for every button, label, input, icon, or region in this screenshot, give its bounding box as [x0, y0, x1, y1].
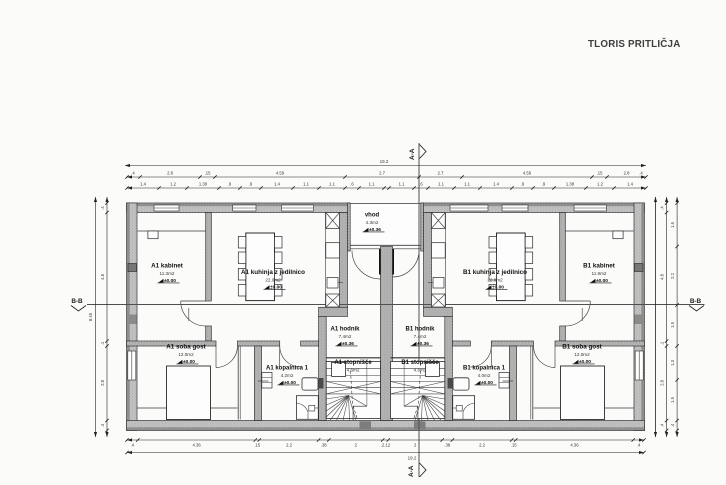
svg-text:4.59: 4.59: [276, 171, 285, 176]
svg-text:.38: .38: [444, 442, 450, 447]
svg-text:4.6m2: 4.6m2: [414, 368, 427, 373]
svg-text:2.8: 2.8: [660, 379, 665, 385]
svg-text:12.0m2: 12.0m2: [574, 352, 590, 357]
svg-text:1.1: 1.1: [329, 182, 335, 187]
svg-text:4.3m2: 4.3m2: [366, 220, 379, 225]
svg-text:.4: .4: [639, 171, 643, 176]
svg-text:1.5: 1.5: [670, 321, 675, 327]
svg-text:12.0m2: 12.0m2: [178, 352, 194, 357]
svg-text:19.2: 19.2: [380, 159, 389, 164]
svg-text:B1 kabinet: B1 kabinet: [583, 263, 616, 270]
svg-text:.4: .4: [100, 206, 105, 210]
svg-text:TLORIS PRITLIČJA: TLORIS PRITLIČJA: [588, 38, 680, 50]
svg-text:.4: .4: [660, 423, 665, 427]
svg-text:A-A: A-A: [409, 148, 416, 160]
svg-text:1.1: 1.1: [303, 182, 309, 187]
svg-text:.1: .1: [660, 341, 665, 345]
svg-text:.6: .6: [419, 182, 423, 187]
svg-text:1.38: 1.38: [566, 182, 575, 187]
svg-text:2: 2: [355, 442, 358, 447]
svg-text:1.4: 1.4: [140, 182, 146, 187]
svg-text:2.7: 2.7: [379, 171, 385, 176]
svg-text:11.9m2: 11.9m2: [592, 271, 607, 276]
svg-text:A-A: A-A: [408, 465, 415, 477]
svg-text:A1 kabinet: A1 kabinet: [151, 263, 184, 270]
svg-text:4.36: 4.36: [570, 442, 579, 447]
svg-text:B-B: B-B: [71, 298, 83, 305]
svg-text:B1 kuhinja z jedilnico: B1 kuhinja z jedilnico: [463, 269, 527, 276]
svg-text:4.59: 4.59: [523, 171, 532, 176]
svg-text:19.2: 19.2: [408, 456, 417, 461]
svg-text:7.4m2: 7.4m2: [414, 334, 427, 339]
svg-text:2.8: 2.8: [100, 379, 105, 385]
svg-text:.6: .6: [350, 182, 354, 187]
svg-text:7.4m2: 7.4m2: [339, 334, 352, 339]
svg-text:4.2m2: 4.2m2: [281, 373, 294, 378]
svg-text:B1 hodnik: B1 hodnik: [405, 327, 435, 333]
svg-text:1.1: 1.1: [369, 182, 375, 187]
svg-text:.4: .4: [670, 423, 675, 427]
svg-text:2.2: 2.2: [670, 272, 675, 278]
svg-text:.9: .9: [228, 182, 232, 187]
svg-text:.9: .9: [521, 182, 525, 187]
svg-text:8.45: 8.45: [88, 312, 93, 321]
svg-text:A1 kopalnica 1: A1 kopalnica 1: [266, 366, 309, 372]
svg-text:.4: .4: [660, 206, 665, 210]
svg-text:1.38: 1.38: [199, 182, 208, 187]
svg-text:B-B: B-B: [690, 298, 702, 305]
svg-text:.2.12: .2.12: [381, 442, 391, 447]
svg-text:22.0m2: 22.0m2: [487, 278, 503, 283]
svg-text:.9: .9: [249, 182, 253, 187]
svg-text:22.0m2: 22.0m2: [265, 278, 281, 283]
svg-text:.9: .9: [542, 182, 546, 187]
svg-text:2.2: 2.2: [479, 442, 485, 447]
svg-text:1.4: 1.4: [274, 182, 280, 187]
svg-text:B1 stopnišče: B1 stopnišče: [401, 360, 439, 366]
svg-text:.15: .15: [205, 171, 211, 176]
svg-text:1.2: 1.2: [170, 182, 176, 187]
svg-text:.38: .38: [321, 442, 327, 447]
svg-text:1.2: 1.2: [597, 182, 603, 187]
svg-text:A1 soba gost: A1 soba gost: [166, 344, 206, 351]
svg-text:4.0m2: 4.0m2: [478, 373, 491, 378]
svg-text:1.6: 1.6: [670, 221, 675, 227]
svg-text:2.7: 2.7: [438, 171, 444, 176]
svg-text:4.6m2: 4.6m2: [347, 368, 360, 373]
svg-text:A1 hodnik: A1 hodnik: [330, 327, 360, 333]
svg-text:1.1: 1.1: [464, 182, 470, 187]
svg-text:.15: .15: [597, 171, 603, 176]
svg-text:2.8: 2.8: [167, 171, 173, 176]
svg-text:2.8: 2.8: [624, 171, 630, 176]
svg-text:.4: .4: [637, 442, 641, 447]
svg-text:1.3: 1.3: [670, 359, 675, 365]
svg-text:1.4: 1.4: [627, 182, 633, 187]
svg-text:4.8: 4.8: [100, 273, 105, 279]
svg-text:.15: .15: [511, 442, 517, 447]
svg-text:2.2: 2.2: [286, 442, 292, 447]
svg-text:B1 kopalnica 1: B1 kopalnica 1: [463, 366, 506, 372]
svg-text:.15: .15: [254, 442, 260, 447]
svg-text:1.1: 1.1: [438, 182, 444, 187]
svg-text:1.1: 1.1: [399, 182, 405, 187]
svg-text:vhod: vhod: [365, 213, 380, 219]
svg-text:.4: .4: [131, 442, 135, 447]
svg-text:A1 kuhinja z jedilnico: A1 kuhinja z jedilnico: [241, 269, 305, 276]
svg-text:A1 stopnišče: A1 stopnišče: [334, 360, 372, 366]
svg-text:1.5: 1.5: [670, 396, 675, 402]
svg-text:4.36: 4.36: [193, 442, 202, 447]
svg-text:1.4: 1.4: [493, 182, 499, 187]
svg-text:11.3m2: 11.3m2: [160, 271, 175, 276]
svg-text:.4: .4: [131, 171, 135, 176]
svg-text:.1: .1: [100, 341, 105, 345]
svg-text:B1 soba gost: B1 soba gost: [562, 344, 602, 351]
svg-text:.4: .4: [100, 423, 105, 427]
svg-text:2: 2: [414, 442, 417, 447]
svg-text:4.8: 4.8: [660, 273, 665, 279]
